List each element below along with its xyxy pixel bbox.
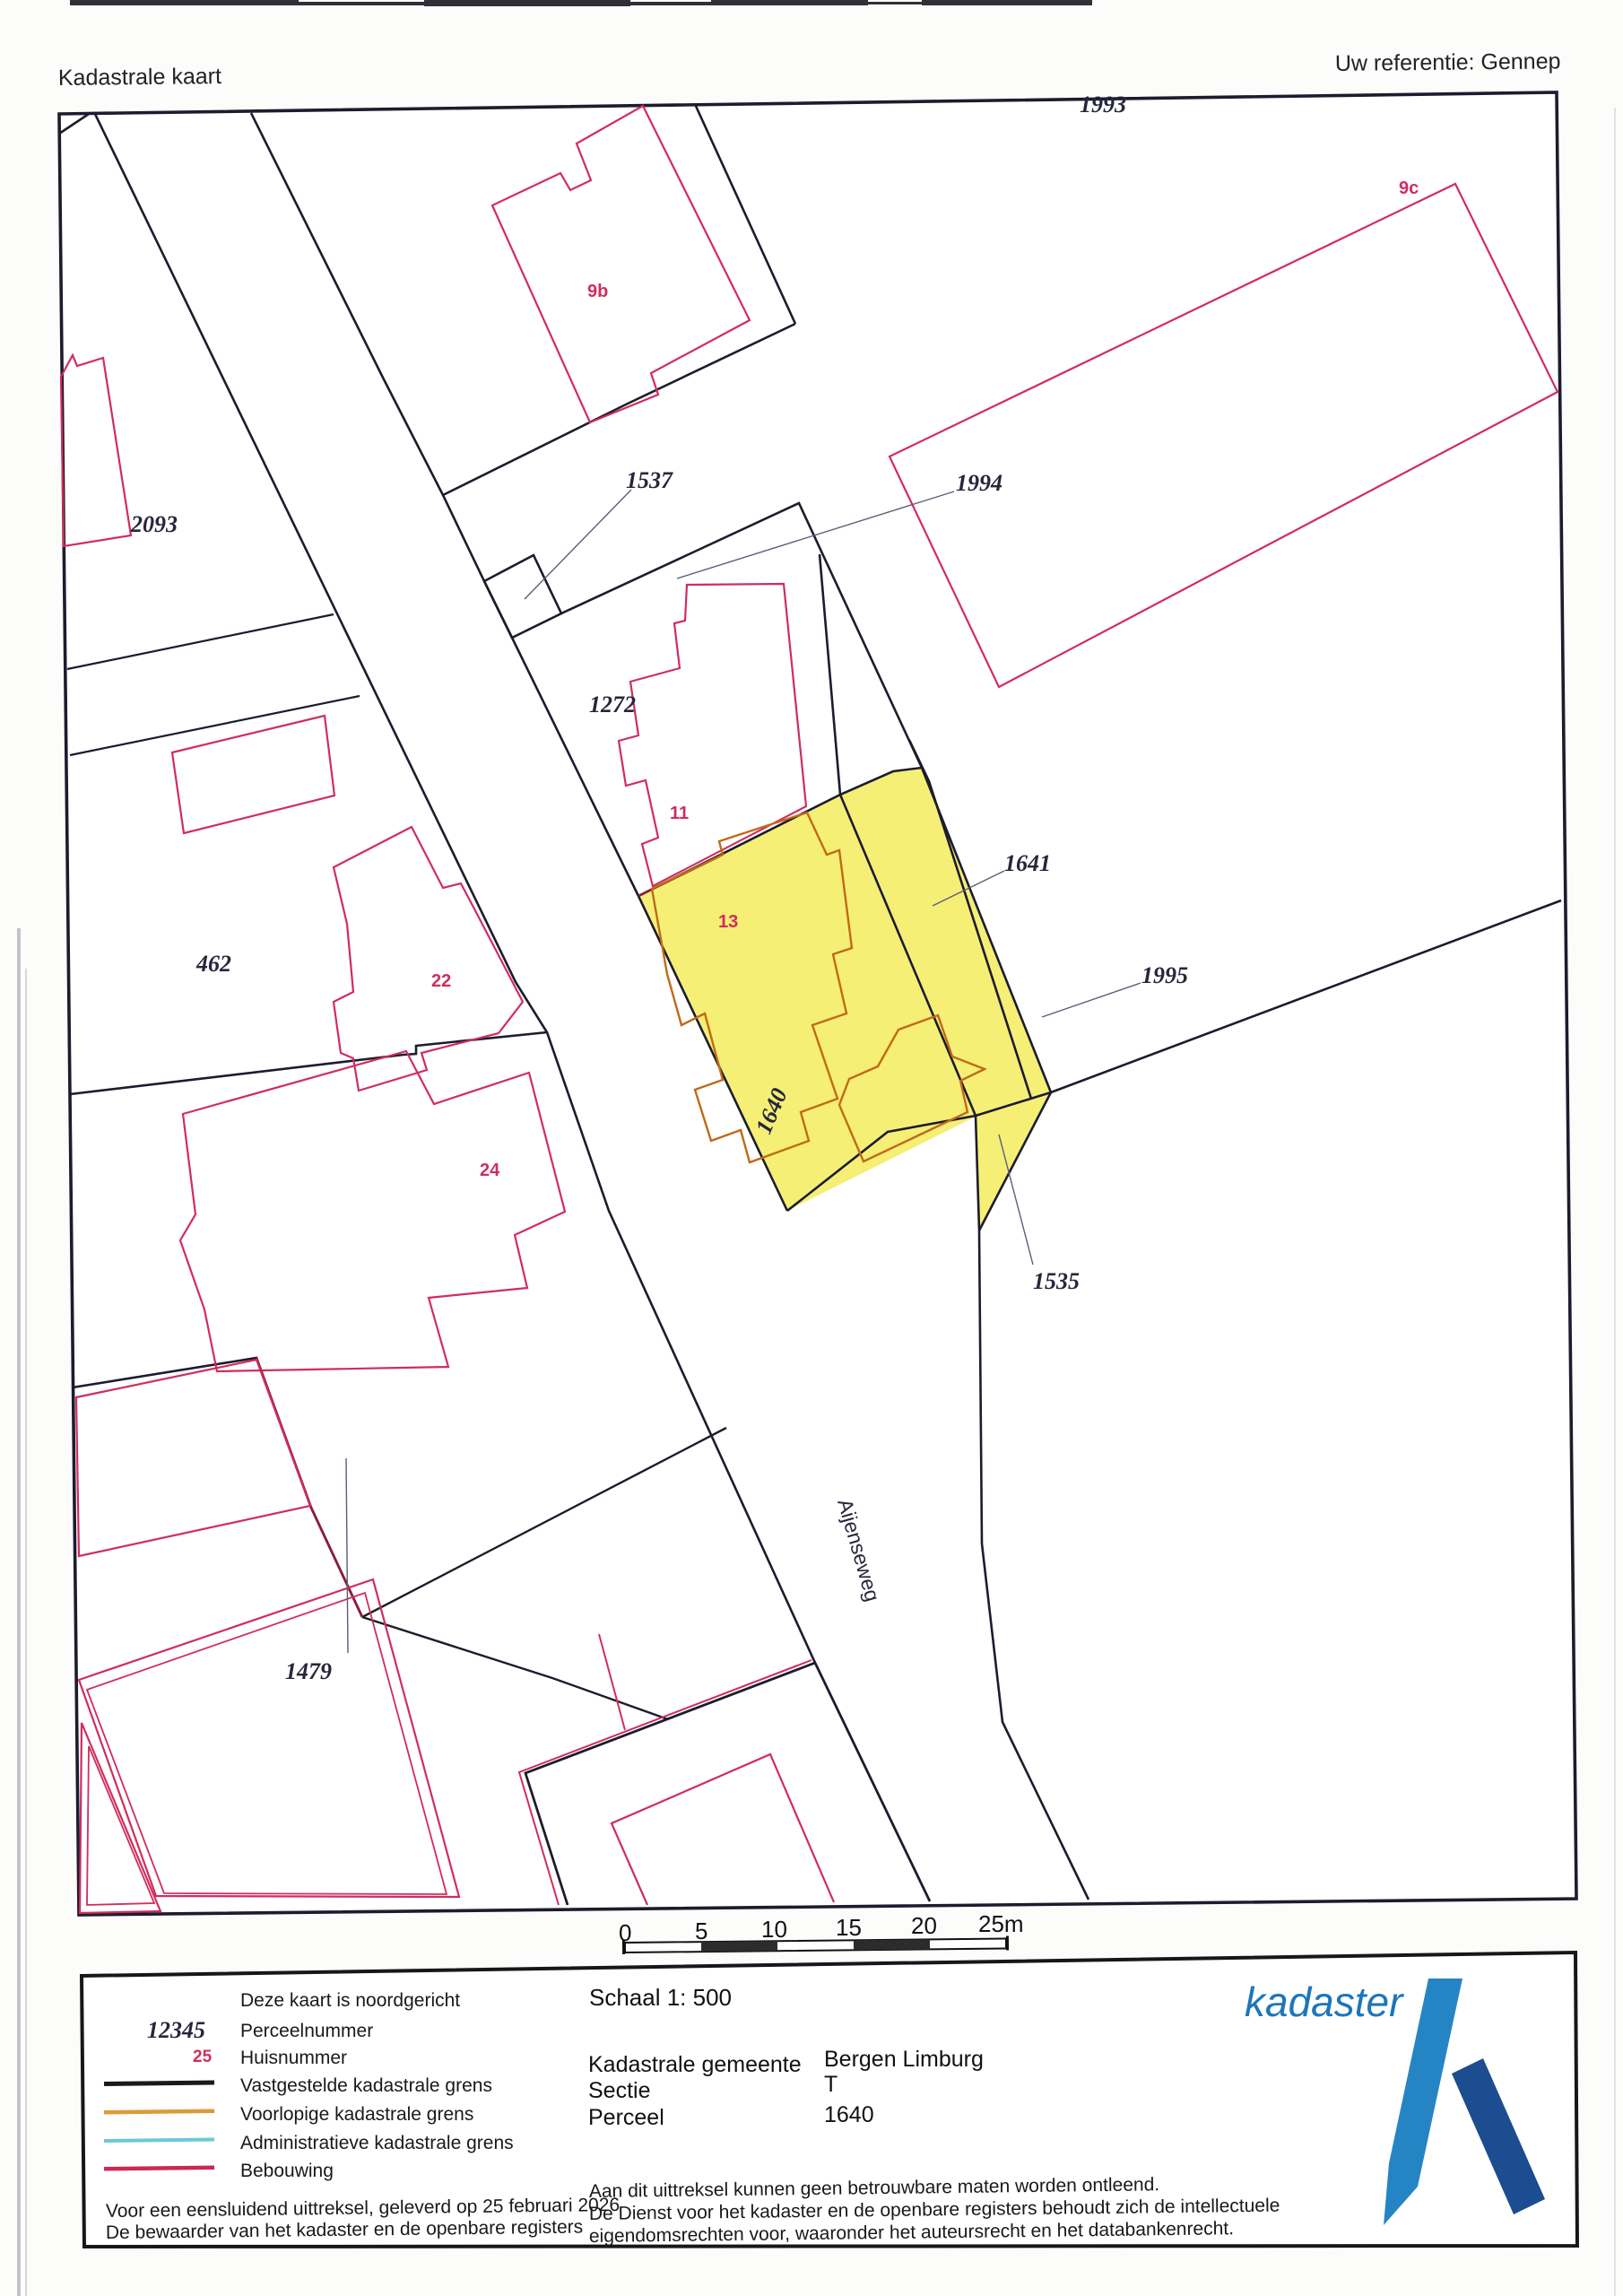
svg-text:9c: 9c — [1399, 178, 1419, 198]
svg-text:Bebouwing: Bebouwing — [240, 2161, 334, 2181]
svg-text:Huisnummer: Huisnummer — [240, 2048, 347, 2068]
svg-text:12345: 12345 — [147, 2017, 205, 2043]
svg-text:1994: 1994 — [956, 470, 1002, 496]
svg-text:Voorlopige kadastrale grens: Voorlopige kadastrale grens — [240, 2104, 473, 2125]
svg-text:5: 5 — [695, 1918, 707, 1944]
svg-text:1537: 1537 — [626, 467, 673, 493]
svg-text:25: 25 — [193, 2048, 213, 2066]
svg-text:15: 15 — [836, 1914, 862, 1941]
svg-text:1640: 1640 — [824, 2102, 874, 2127]
svg-text:1535: 1535 — [1033, 1268, 1080, 1294]
svg-text:Uw referentie: Gennep: Uw referentie: Gennep — [1335, 48, 1561, 76]
svg-text:Perceelnummer: Perceelnummer — [240, 2021, 373, 2041]
svg-text:Administratieve kadastrale gre: Administratieve kadastrale grens — [240, 2133, 514, 2153]
svg-text:Vastgestelde kadastrale grens: Vastgestelde kadastrale grens — [240, 2075, 492, 2096]
svg-text:11: 11 — [670, 804, 689, 823]
svg-text:Kadastrale kaart: Kadastrale kaart — [58, 64, 221, 91]
svg-text:Deze kaart is noordgericht: Deze kaart is noordgericht — [240, 1990, 460, 2011]
svg-text:13: 13 — [718, 912, 738, 932]
svg-text:Perceel: Perceel — [588, 2105, 664, 2130]
svg-text:Kadastrale gemeente: Kadastrale gemeente — [588, 2052, 802, 2077]
svg-text:Schaal 1: 500: Schaal 1: 500 — [589, 1984, 732, 2011]
svg-text:1479: 1479 — [285, 1658, 332, 1684]
svg-text:10: 10 — [761, 1916, 787, 1943]
svg-text:1993: 1993 — [1080, 91, 1126, 117]
svg-text:1995: 1995 — [1141, 962, 1188, 988]
svg-text:kadaster: kadaster — [1245, 1979, 1404, 2025]
svg-text:2093: 2093 — [130, 511, 178, 537]
svg-text:1272: 1272 — [589, 691, 636, 717]
svg-text:Bergen Limburg: Bergen Limburg — [824, 2047, 984, 2072]
svg-text:25m: 25m — [978, 1910, 1024, 1937]
svg-text:24: 24 — [480, 1161, 500, 1180]
svg-text:9b: 9b — [587, 282, 608, 301]
svg-text:20: 20 — [911, 1912, 937, 1939]
svg-text:1641: 1641 — [1004, 850, 1051, 876]
svg-text:T: T — [824, 2072, 838, 2097]
svg-text:Sectie: Sectie — [588, 2078, 650, 2103]
svg-text:462: 462 — [195, 951, 231, 977]
svg-text:22: 22 — [431, 971, 451, 991]
